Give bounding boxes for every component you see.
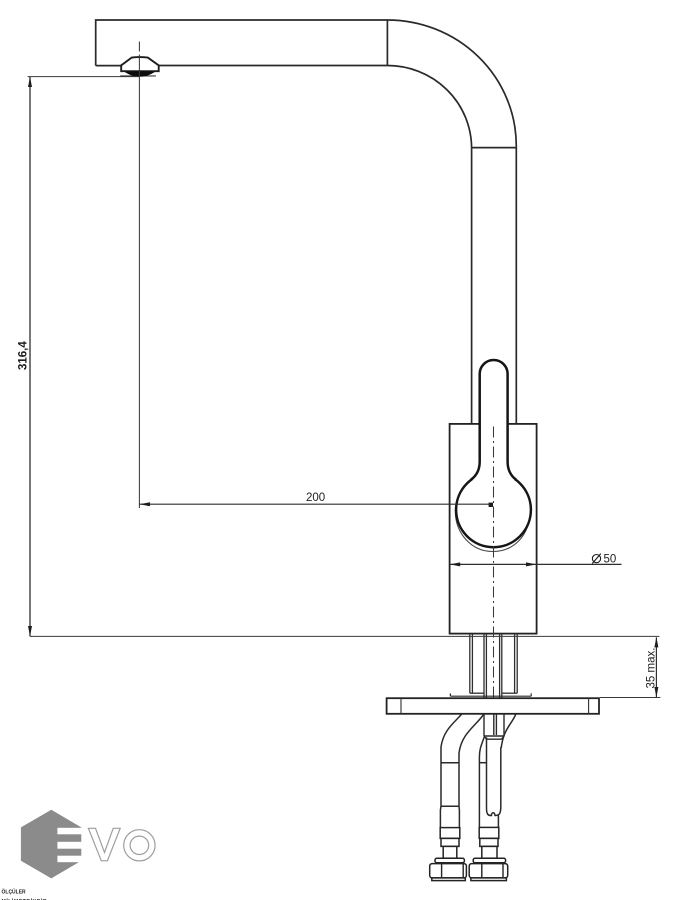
svg-text:ÖLÇÜLER: ÖLÇÜLER [2, 888, 27, 895]
svg-text:316,4: 316,4 [18, 341, 30, 370]
svg-text:50: 50 [604, 554, 617, 566]
svg-text:35 max.: 35 max. [646, 648, 658, 689]
svg-text:200: 200 [306, 492, 325, 504]
